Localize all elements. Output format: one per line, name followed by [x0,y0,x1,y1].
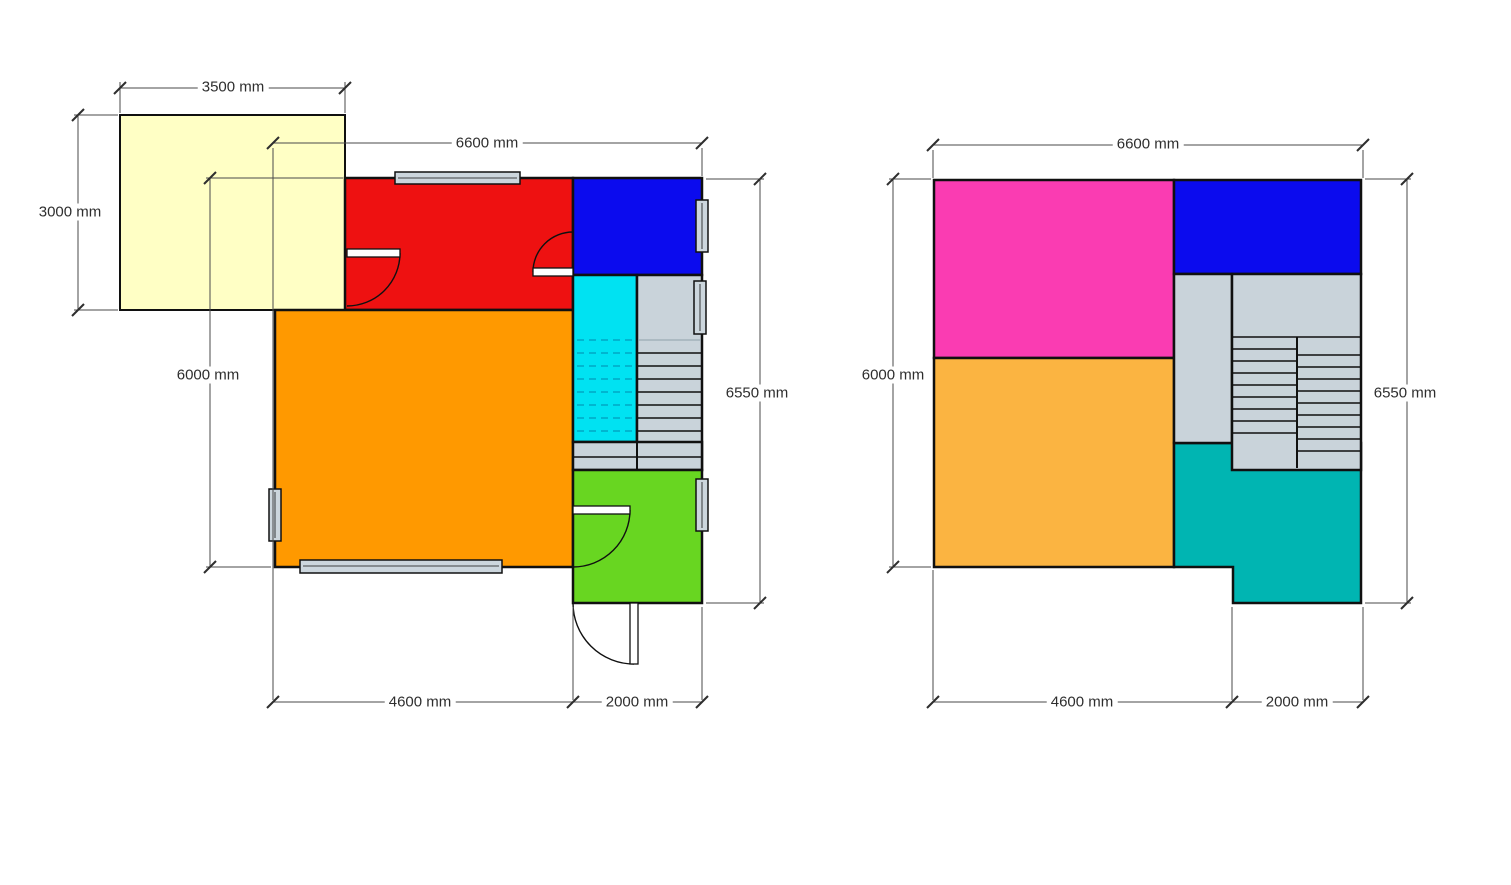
window-green-right [696,479,708,531]
window-orange-bottom [300,560,502,573]
dim-label-4600-right-plan: 4600 mm [1047,694,1118,711]
room-orange-upper [934,358,1174,567]
door-entry-exterior [573,603,638,664]
room-orange [275,310,573,567]
dim-label-6600-left-plan: 6600 mm [452,135,523,152]
room-red [345,178,573,310]
dim-label-6550-left-plan: 6550 mm [722,385,793,402]
right-plan [887,139,1413,708]
room-green [573,470,702,603]
window-red-top [395,172,520,184]
dim-label-6000-left-plan: 6000 mm [173,367,244,384]
stair-landing-strip [1174,274,1232,443]
room-blue [573,178,702,275]
dim-label-2000-left-plan: 2000 mm [602,694,673,711]
left-plan [72,82,766,708]
floor-plans-canvas: 3500 mm 3000 mm 6600 mm 6000 mm 6550 mm … [0,0,1511,885]
dim-label-3000: 3000 mm [35,204,106,221]
dim-label-2000-right-plan: 2000 mm [1262,694,1333,711]
window-blue-right [696,200,708,252]
dim-label-6600-right-plan: 6600 mm [1113,136,1184,153]
dim-label-6550-right-plan: 6550 mm [1370,385,1441,402]
dim-label-6000-right-plan: 6000 mm [858,367,929,384]
dim-label-4600-left-plan: 4600 mm [385,694,456,711]
window-orange-left [269,489,281,541]
stair-up-cyan [573,275,637,442]
room-yellow [120,115,345,310]
floor-plan-svg [0,0,1511,885]
window-stair-right [694,281,706,334]
dim-label-3500: 3500 mm [198,79,269,96]
room-blue-upper [1174,180,1361,274]
room-pink [934,180,1174,358]
